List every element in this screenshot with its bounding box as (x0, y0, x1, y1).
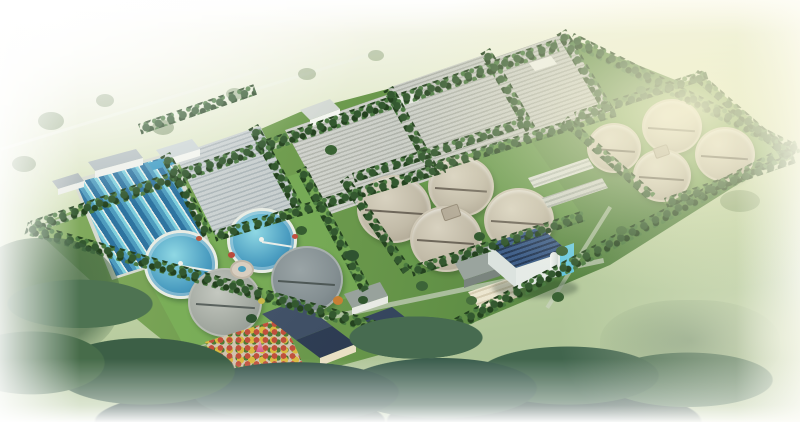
field-tree-cluster (96, 94, 114, 107)
clarifier-center-2 (428, 156, 494, 217)
tree (296, 226, 307, 235)
tree-row-inner (138, 84, 257, 134)
workshop-building (0, 0, 800, 422)
clarifier-bridge (181, 265, 213, 272)
tank-scraper-arm (417, 239, 474, 245)
long-shed (0, 0, 800, 422)
outer-road (150, 50, 380, 123)
sedimentation-basin-rim (0, 0, 800, 422)
chemical-building (0, 0, 800, 422)
tree (474, 232, 485, 241)
aeration-basin-block-1 (0, 0, 800, 422)
plant-site-ground (0, 0, 800, 422)
gabled-workshop-wall (0, 0, 800, 422)
clarifier-lawn-northeast (0, 0, 800, 422)
sedimentation-basins (0, 0, 800, 422)
admin-house-wall (0, 0, 800, 422)
long-shed (0, 0, 800, 422)
mid-shed-roof (0, 0, 800, 422)
tree (636, 86, 646, 94)
admin-roof-house (0, 0, 800, 422)
workshop-building-wall (0, 0, 800, 422)
tree-row (561, 116, 655, 201)
clarifier-center-platform (178, 261, 183, 266)
field-tree-cluster (226, 88, 243, 100)
chemical-pool (0, 0, 800, 422)
tree (236, 279, 244, 286)
clarifier-northeast-1 (642, 99, 702, 154)
field-tree-cluster (368, 50, 384, 61)
tree (556, 246, 568, 256)
tree (358, 296, 368, 304)
clarifier-center-3 (484, 188, 554, 252)
small-workshop (0, 0, 800, 422)
internal-road (253, 194, 330, 329)
fountain (230, 260, 254, 279)
tank-scraper-arm (435, 187, 487, 193)
autumn-tree (333, 296, 343, 305)
clarifier-lawn-center (0, 0, 800, 422)
field-tree-cluster (298, 68, 316, 80)
tank-scraper-arm (648, 127, 695, 132)
tree (616, 226, 627, 235)
field-tree-cluster (38, 112, 64, 130)
tree-row (432, 106, 617, 172)
forest-cluster-left (0, 238, 120, 358)
tree-row (352, 118, 524, 183)
clarifier-northeast-4 (633, 149, 691, 202)
aeration-basin-block-2 (0, 0, 800, 422)
canopy-building (0, 0, 800, 422)
tree-row (340, 176, 412, 274)
clarifier-center-platform (259, 237, 264, 242)
flower-bush (292, 234, 298, 239)
aerial-plant-rendering (0, 0, 800, 422)
garden-plaza (0, 0, 800, 422)
admin-roof-main (0, 0, 800, 422)
office-building-roof (0, 0, 800, 422)
tree-row (664, 154, 796, 208)
small-workshop (0, 0, 800, 422)
workshop-shed-roof (0, 0, 800, 422)
tank-scraper-arm (701, 155, 748, 160)
clarifier-center-4 (410, 206, 482, 272)
internal-road (188, 258, 604, 349)
tree (326, 364, 337, 373)
autumn-tree (404, 326, 413, 334)
tree-row (296, 166, 370, 293)
tree (466, 296, 477, 305)
workshop-building (0, 0, 800, 422)
pump-structure (653, 144, 671, 159)
tree (246, 314, 257, 323)
fountain-water (238, 266, 246, 272)
tree-row (213, 162, 446, 242)
office-cyan-tower (0, 0, 800, 422)
clarifier-water-2 (227, 208, 297, 273)
gabled-workshop-roof (0, 0, 800, 422)
garden-sculpture (256, 340, 264, 352)
flower-bush (196, 236, 202, 241)
flower-bush (258, 298, 265, 304)
clarifier-lawn-southwest (0, 0, 800, 422)
pump-structure (440, 203, 461, 221)
tree-row (574, 70, 708, 122)
haze-overlay (0, 0, 800, 422)
clarifier-northeast-3 (695, 127, 755, 182)
field-tree-cluster (720, 190, 760, 212)
workshop-shed-wall (0, 0, 800, 422)
office-building-front-wall (0, 0, 800, 422)
tree-belt-southwest (24, 222, 430, 348)
workshop-building-wall (0, 0, 800, 422)
tree (345, 250, 359, 261)
tree (325, 145, 337, 155)
concrete-tank-2 (271, 246, 343, 313)
tree-row (691, 70, 793, 160)
tree-belt-northeast (568, 33, 793, 154)
aeration-basin-block-4 (0, 0, 800, 422)
chemical-building-wall (0, 0, 800, 422)
clarifier-water-1 (144, 230, 218, 299)
tank-scraper-arm (196, 303, 255, 309)
admin-wall (0, 0, 800, 422)
tree (416, 281, 428, 291)
office-building-shadow (492, 278, 578, 298)
tank-scraper-arm (278, 280, 335, 286)
boundary-road (38, 43, 565, 231)
field-tree-cluster (152, 120, 174, 135)
office-silo (550, 252, 558, 277)
tank-scraper-arm (491, 220, 546, 226)
tank-scraper-arm (593, 148, 635, 153)
internal-road (546, 206, 612, 309)
flower-bush (228, 252, 235, 258)
tree-row (160, 152, 214, 240)
tree-row (557, 29, 614, 114)
tree-belt-northwest (30, 39, 560, 233)
clarifier-bridge (262, 241, 292, 248)
tree-row (410, 210, 588, 276)
tree-row (248, 124, 302, 210)
tree-row (480, 48, 536, 133)
field-tree-cluster (12, 156, 36, 172)
outer-road (0, 66, 269, 151)
tree-row (383, 86, 436, 170)
forest-foreground (0, 0, 800, 422)
aeration-basin-block-3 (0, 0, 800, 422)
office-building-side-wall (0, 0, 800, 422)
admin-roof-wing (0, 0, 800, 422)
field-background (0, 0, 800, 422)
tank-scraper-arm (365, 209, 424, 215)
clarifier-northeast-2 (587, 123, 641, 173)
clarifier-center-1 (357, 175, 431, 243)
mid-shed-wall (0, 0, 800, 422)
tank-scraper-arm (639, 176, 684, 181)
tree (552, 292, 564, 302)
forest-cluster-right (600, 300, 780, 390)
tree-belt-southeast (428, 140, 800, 343)
concrete-tank-1 (188, 268, 262, 337)
